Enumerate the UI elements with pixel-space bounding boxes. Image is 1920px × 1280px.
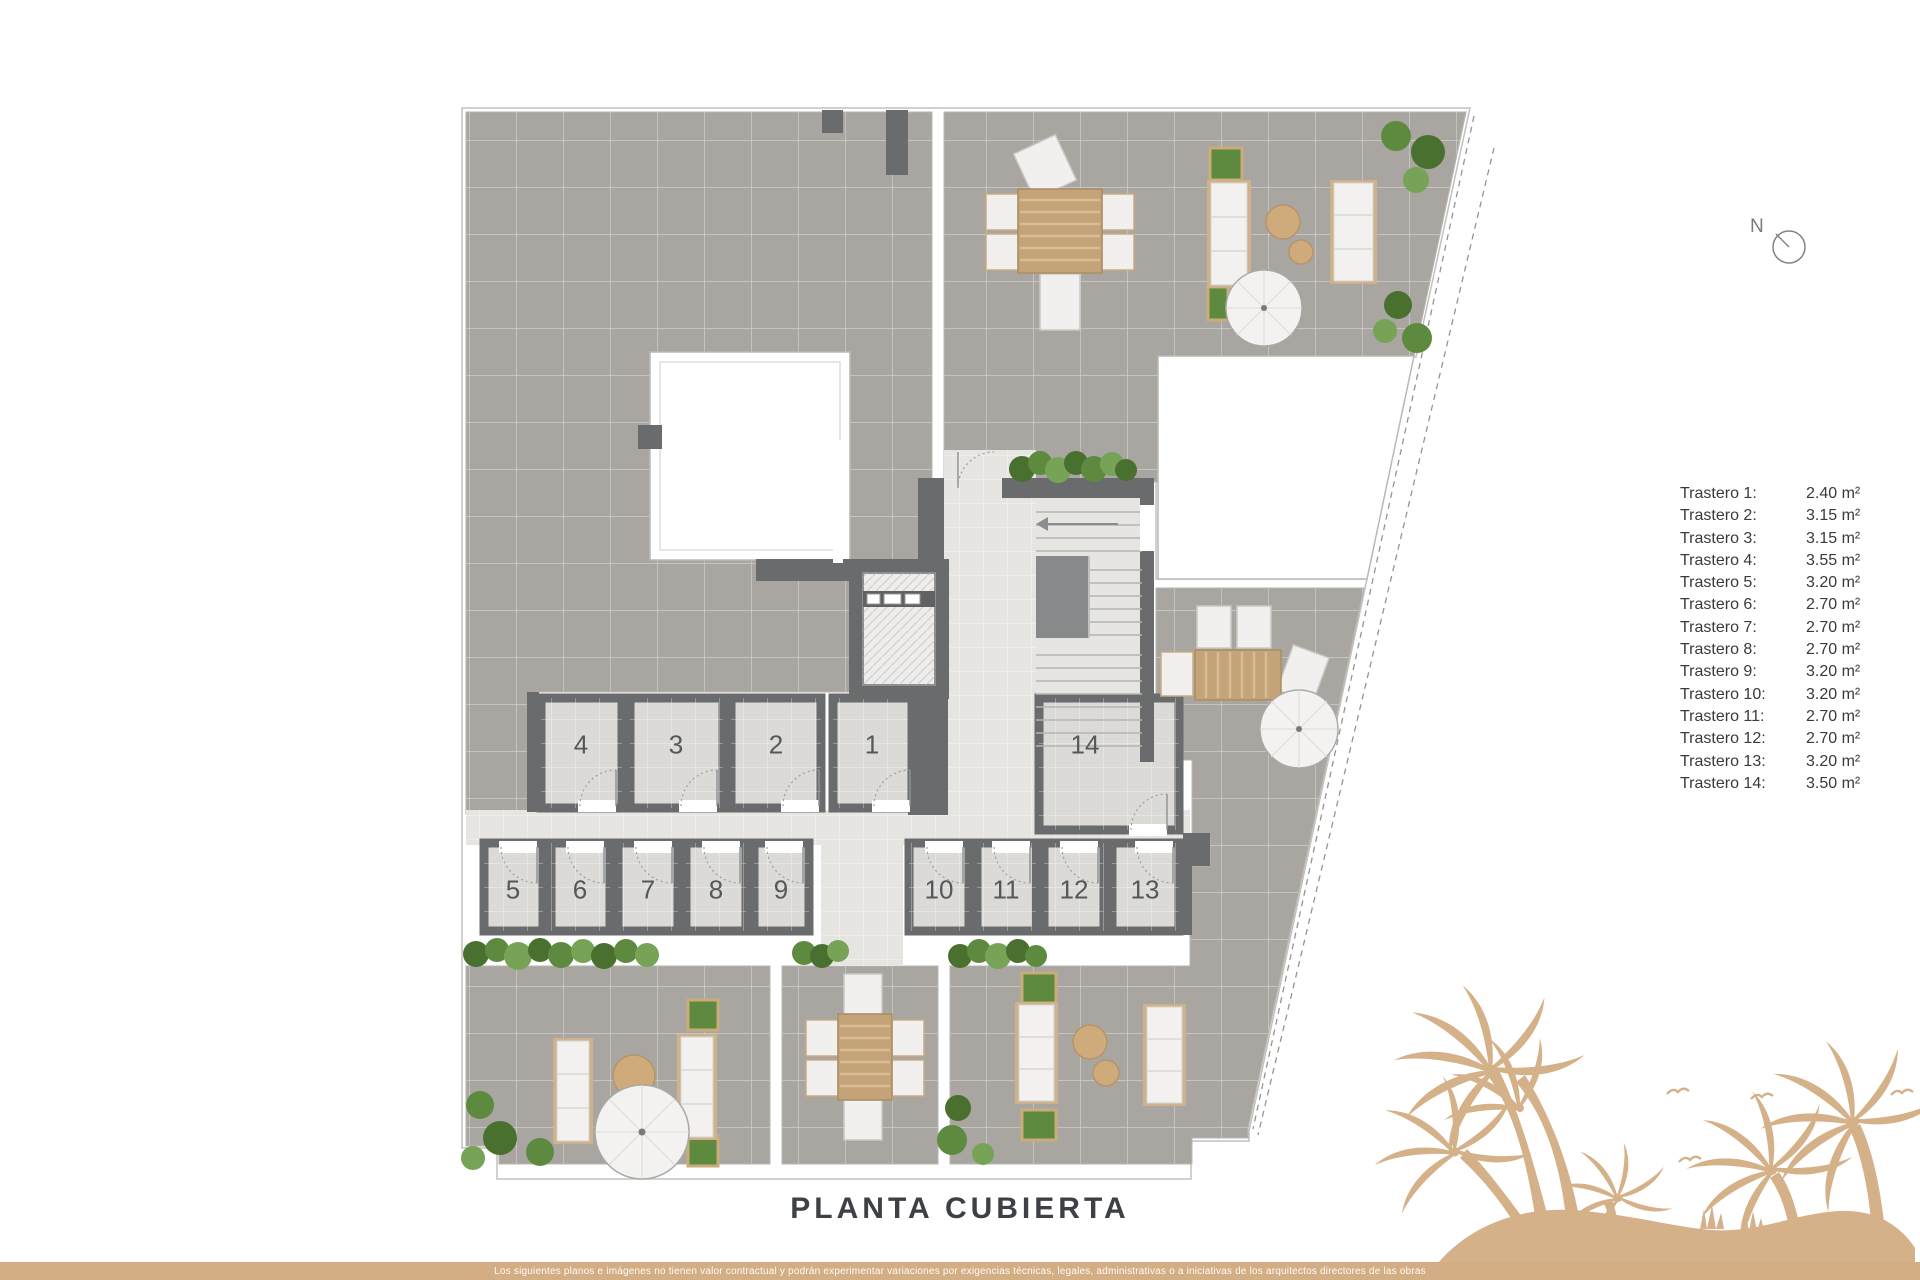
page: 1 2 3 4 5 6 7 8 9 10 11 12 13 14 N Trast… <box>0 0 1920 1280</box>
round-side-table <box>1266 205 1300 239</box>
compass-north-label: N <box>1750 216 1764 238</box>
chimney-block <box>886 110 908 175</box>
legend-row: Trastero 10:3.20 m² <box>1680 684 1860 706</box>
legend-value: 2.70 m² <box>1806 617 1860 639</box>
round-side-table <box>1073 1025 1107 1059</box>
storage-area-legend: Trastero 1:2.40 m² Trastero 2:3.15 m² Tr… <box>1680 483 1860 795</box>
round-side-table <box>1093 1060 1119 1086</box>
chimney-block <box>822 110 843 133</box>
legend-value: 3.55 m² <box>1806 550 1860 572</box>
legend-label: Trastero 9: <box>1680 661 1806 683</box>
legend-label: Trastero 3: <box>1680 528 1806 550</box>
elevator <box>849 559 949 699</box>
legend-label: Trastero 7: <box>1680 617 1806 639</box>
legend-label: Trastero 13: <box>1680 751 1806 773</box>
legend-label: Trastero 8: <box>1680 639 1806 661</box>
room-number-3: 3 <box>669 730 683 761</box>
legend-label: Trastero 14: <box>1680 773 1806 795</box>
stair-door-gap <box>1140 505 1154 551</box>
legend-row: Trastero 5:3.20 m² <box>1680 572 1860 594</box>
room-number-7: 7 <box>641 875 655 906</box>
legend-value: 3.20 m² <box>1806 684 1860 706</box>
room-number-6: 6 <box>573 875 587 906</box>
legend-value: 3.15 m² <box>1806 528 1860 550</box>
legend-value: 3.20 m² <box>1806 661 1860 683</box>
legend-label: Trastero 2: <box>1680 505 1806 527</box>
room-number-4: 4 <box>574 730 588 761</box>
room-number-12: 12 <box>1060 875 1089 906</box>
legend-row: Trastero 11:2.70 m² <box>1680 706 1860 728</box>
room-number-13: 13 <box>1131 875 1160 906</box>
legend-label: Trastero 5: <box>1680 572 1806 594</box>
legend-value: 3.20 m² <box>1806 751 1860 773</box>
wood-table <box>1195 650 1281 700</box>
legend-value: 2.70 m² <box>1806 706 1860 728</box>
legend-value: 3.15 m² <box>1806 505 1860 527</box>
palm-trees-graphic <box>1373 983 1920 1263</box>
compass-icon <box>1773 231 1805 263</box>
parapet-strip <box>833 440 843 563</box>
legend-label: Trastero 1: <box>1680 483 1806 505</box>
legend-row: Trastero 3:3.15 m² <box>1680 528 1860 550</box>
stair-landing <box>1036 556 1088 638</box>
legend-label: Trastero 10: <box>1680 684 1806 706</box>
legend-value: 2.70 m² <box>1806 728 1860 750</box>
footer-disclaimer: Los siguientes planos e imágenes no tien… <box>494 1266 1426 1277</box>
legend-row: Trastero 13:3.20 m² <box>1680 751 1860 773</box>
room-number-9: 9 <box>774 875 788 906</box>
footer-bar: Los siguientes planos e imágenes no tien… <box>0 1262 1920 1280</box>
legend-label: Trastero 6: <box>1680 594 1806 616</box>
legend-label: Trastero 4: <box>1680 550 1806 572</box>
legend-row: Trastero 12:2.70 m² <box>1680 728 1860 750</box>
room-number-5: 5 <box>506 875 520 906</box>
page-title: PLANTA CUBIERTA <box>790 1192 1129 1226</box>
legend-value: 3.20 m² <box>1806 572 1860 594</box>
room-number-11: 11 <box>993 875 1020 906</box>
legend-value: 3.50 m² <box>1806 773 1860 795</box>
legend-value: 2.40 m² <box>1806 483 1860 505</box>
legend-row: Trastero 8:2.70 m² <box>1680 639 1860 661</box>
room-number-2: 2 <box>769 730 783 761</box>
room-number-1: 1 <box>865 730 879 761</box>
legend-label: Trastero 11: <box>1680 706 1806 728</box>
round-side-table <box>1289 240 1313 264</box>
legend-row: Trastero 1:2.40 m² <box>1680 483 1860 505</box>
legend-row: Trastero 14:3.50 m² <box>1680 773 1860 795</box>
room-number-14: 14 <box>1071 730 1100 761</box>
legend-row: Trastero 7:2.70 m² <box>1680 617 1860 639</box>
lounger <box>1040 274 1080 330</box>
legend-label: Trastero 12: <box>1680 728 1806 750</box>
floor-plan-svg <box>0 0 1920 1280</box>
room-number-8: 8 <box>709 875 723 906</box>
legend-value: 2.70 m² <box>1806 594 1860 616</box>
legend-value: 2.70 m² <box>1806 639 1860 661</box>
legend-row: Trastero 4:3.55 m² <box>1680 550 1860 572</box>
legend-row: Trastero 2:3.15 m² <box>1680 505 1860 527</box>
legend-row: Trastero 9:3.20 m² <box>1680 661 1860 683</box>
legend-row: Trastero 6:2.70 m² <box>1680 594 1860 616</box>
room-number-10: 10 <box>925 875 954 906</box>
pillar-block <box>638 425 662 449</box>
